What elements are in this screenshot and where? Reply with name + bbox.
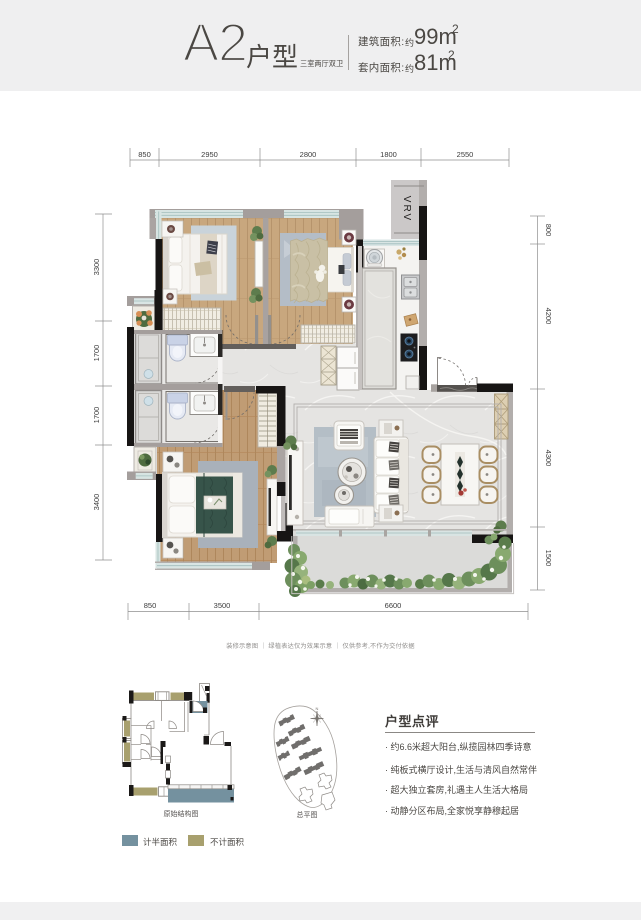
svg-text:原始结构图: 原始结构图 xyxy=(164,809,199,818)
svg-text:N: N xyxy=(316,706,319,711)
svg-text:4300: 4300 xyxy=(544,450,553,467)
svg-text:3400: 3400 xyxy=(92,494,101,511)
svg-text:2550: 2550 xyxy=(457,150,474,159)
svg-text:1800: 1800 xyxy=(380,150,397,159)
svg-text:6600: 6600 xyxy=(385,601,402,610)
svg-text:850: 850 xyxy=(138,150,151,159)
svg-text:1700: 1700 xyxy=(92,345,101,362)
svg-text:1700: 1700 xyxy=(92,407,101,424)
svg-text:800: 800 xyxy=(544,224,553,237)
svg-text:VRV: VRV xyxy=(401,196,412,222)
svg-text:2800: 2800 xyxy=(300,150,317,159)
svg-text:1500: 1500 xyxy=(544,550,553,567)
svg-text:4200: 4200 xyxy=(544,308,553,325)
svg-text:3300: 3300 xyxy=(92,259,101,276)
svg-text:2950: 2950 xyxy=(201,150,218,159)
svg-text:总平图: 总平图 xyxy=(297,810,318,819)
svg-text:850: 850 xyxy=(144,601,157,610)
svg-text:3500: 3500 xyxy=(214,601,231,610)
